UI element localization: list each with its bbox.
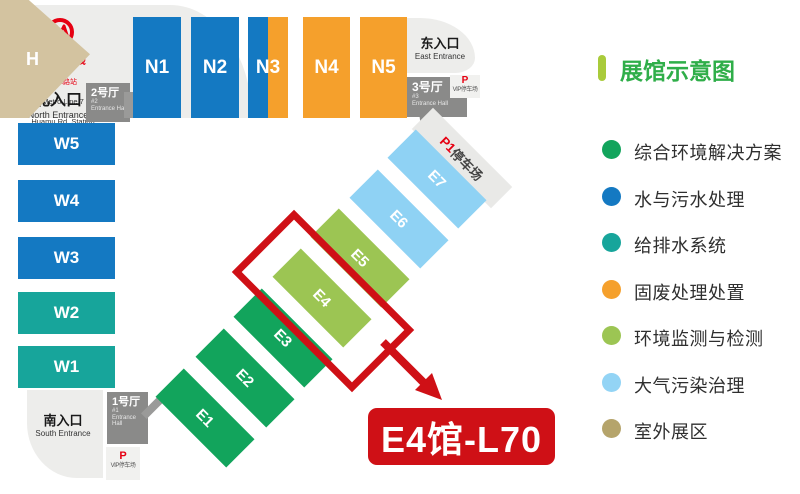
hall-n3: N3: [248, 17, 288, 118]
hall-n2: N2: [191, 17, 239, 118]
hall-n4-label: N4: [314, 57, 338, 79]
entrance-hall-3-sub: Entrance Hall: [412, 101, 467, 108]
n1-connector: [124, 92, 133, 118]
hall-n2-label: N2: [203, 57, 227, 79]
entrance-hall-1-sub: Entrance Hall: [112, 415, 148, 428]
hall-n4: N4: [303, 17, 350, 118]
entrance-hall-1-title: 1号厅: [112, 396, 148, 408]
hall-n3-label: N3: [256, 57, 280, 79]
e4-booth-callout: E4馆-L70: [368, 408, 555, 465]
hall-n5-label: N5: [371, 57, 395, 79]
hall-h-label: H: [26, 49, 39, 70]
east-entrance-label: 东入口 East Entrance: [403, 33, 477, 61]
east-entrance-en: East Entrance: [403, 52, 477, 61]
hall-w1: W1: [18, 346, 115, 388]
legend-item-7: 室外展区: [634, 418, 800, 444]
e4-booth-callout-text: E4馆-L70: [381, 411, 542, 463]
hall-w2-label: W2: [54, 303, 80, 323]
south-entrance-label: 南入口 South Entrance: [27, 410, 99, 438]
legend-dot-5: [602, 326, 621, 345]
hall-w5: W5: [18, 123, 115, 165]
hall-w4-label: W4: [54, 191, 80, 211]
hall-w3-label: W3: [54, 248, 80, 268]
hall-e6-label: E6: [386, 206, 411, 231]
vip-parking-top: P VIP停车场: [450, 75, 480, 98]
hall-e7-label: E7: [424, 166, 449, 191]
legend-dot-3: [602, 233, 621, 252]
hall-w1-label: W1: [54, 357, 80, 377]
east-entrance-zh: 东入口: [403, 33, 477, 52]
legend-dot-7: [602, 419, 621, 438]
hall-e2-label: E2: [232, 365, 257, 390]
hall-w4: W4: [18, 180, 115, 222]
legend-item-4: 固废处理处置: [634, 279, 800, 305]
hall-w5-label: W5: [54, 134, 80, 154]
vip-parking-bottom-label: VIP停车场: [106, 463, 140, 470]
legend-item-3: 给排水系统: [634, 232, 800, 258]
legend-dot-6: [602, 373, 621, 392]
legend-title-bar: [598, 55, 606, 81]
parking-icon: P: [106, 450, 140, 463]
hall-e1-label: E1: [192, 405, 217, 430]
legend-dot-4: [602, 280, 621, 299]
south-entrance-en: South Entrance: [27, 429, 99, 438]
legend-item-2: 水与污水处理: [634, 186, 800, 212]
vip-parking-bottom: P VIP停车场: [106, 447, 140, 480]
hall-n5: N5: [360, 17, 407, 118]
hall-n1: N1: [133, 17, 181, 118]
parking-icon: P: [450, 75, 480, 87]
vip-parking-top-label: VIP停车场: [450, 87, 480, 94]
legend-item-1: 综合环境解决方案: [634, 139, 800, 165]
legend-item-5: 环境监测与检测: [634, 325, 800, 351]
hall-w2: W2: [18, 292, 115, 334]
hall-n1-label: N1: [145, 57, 169, 79]
exhibition-map: 地铁7号线 花木路站 Metro Line 7 Huamu Rd. Statio…: [0, 0, 800, 494]
legend-item-6: 大气污染治理: [634, 372, 800, 398]
legend-title: 展馆示意图: [620, 52, 735, 86]
south-entrance-zh: 南入口: [27, 410, 99, 429]
legend-dot-2: [602, 187, 621, 206]
hall-w3: W3: [18, 237, 115, 279]
entrance-hall-1: 1号厅 #1 Entrance Hall: [107, 392, 148, 444]
legend-dot-1: [602, 140, 621, 159]
